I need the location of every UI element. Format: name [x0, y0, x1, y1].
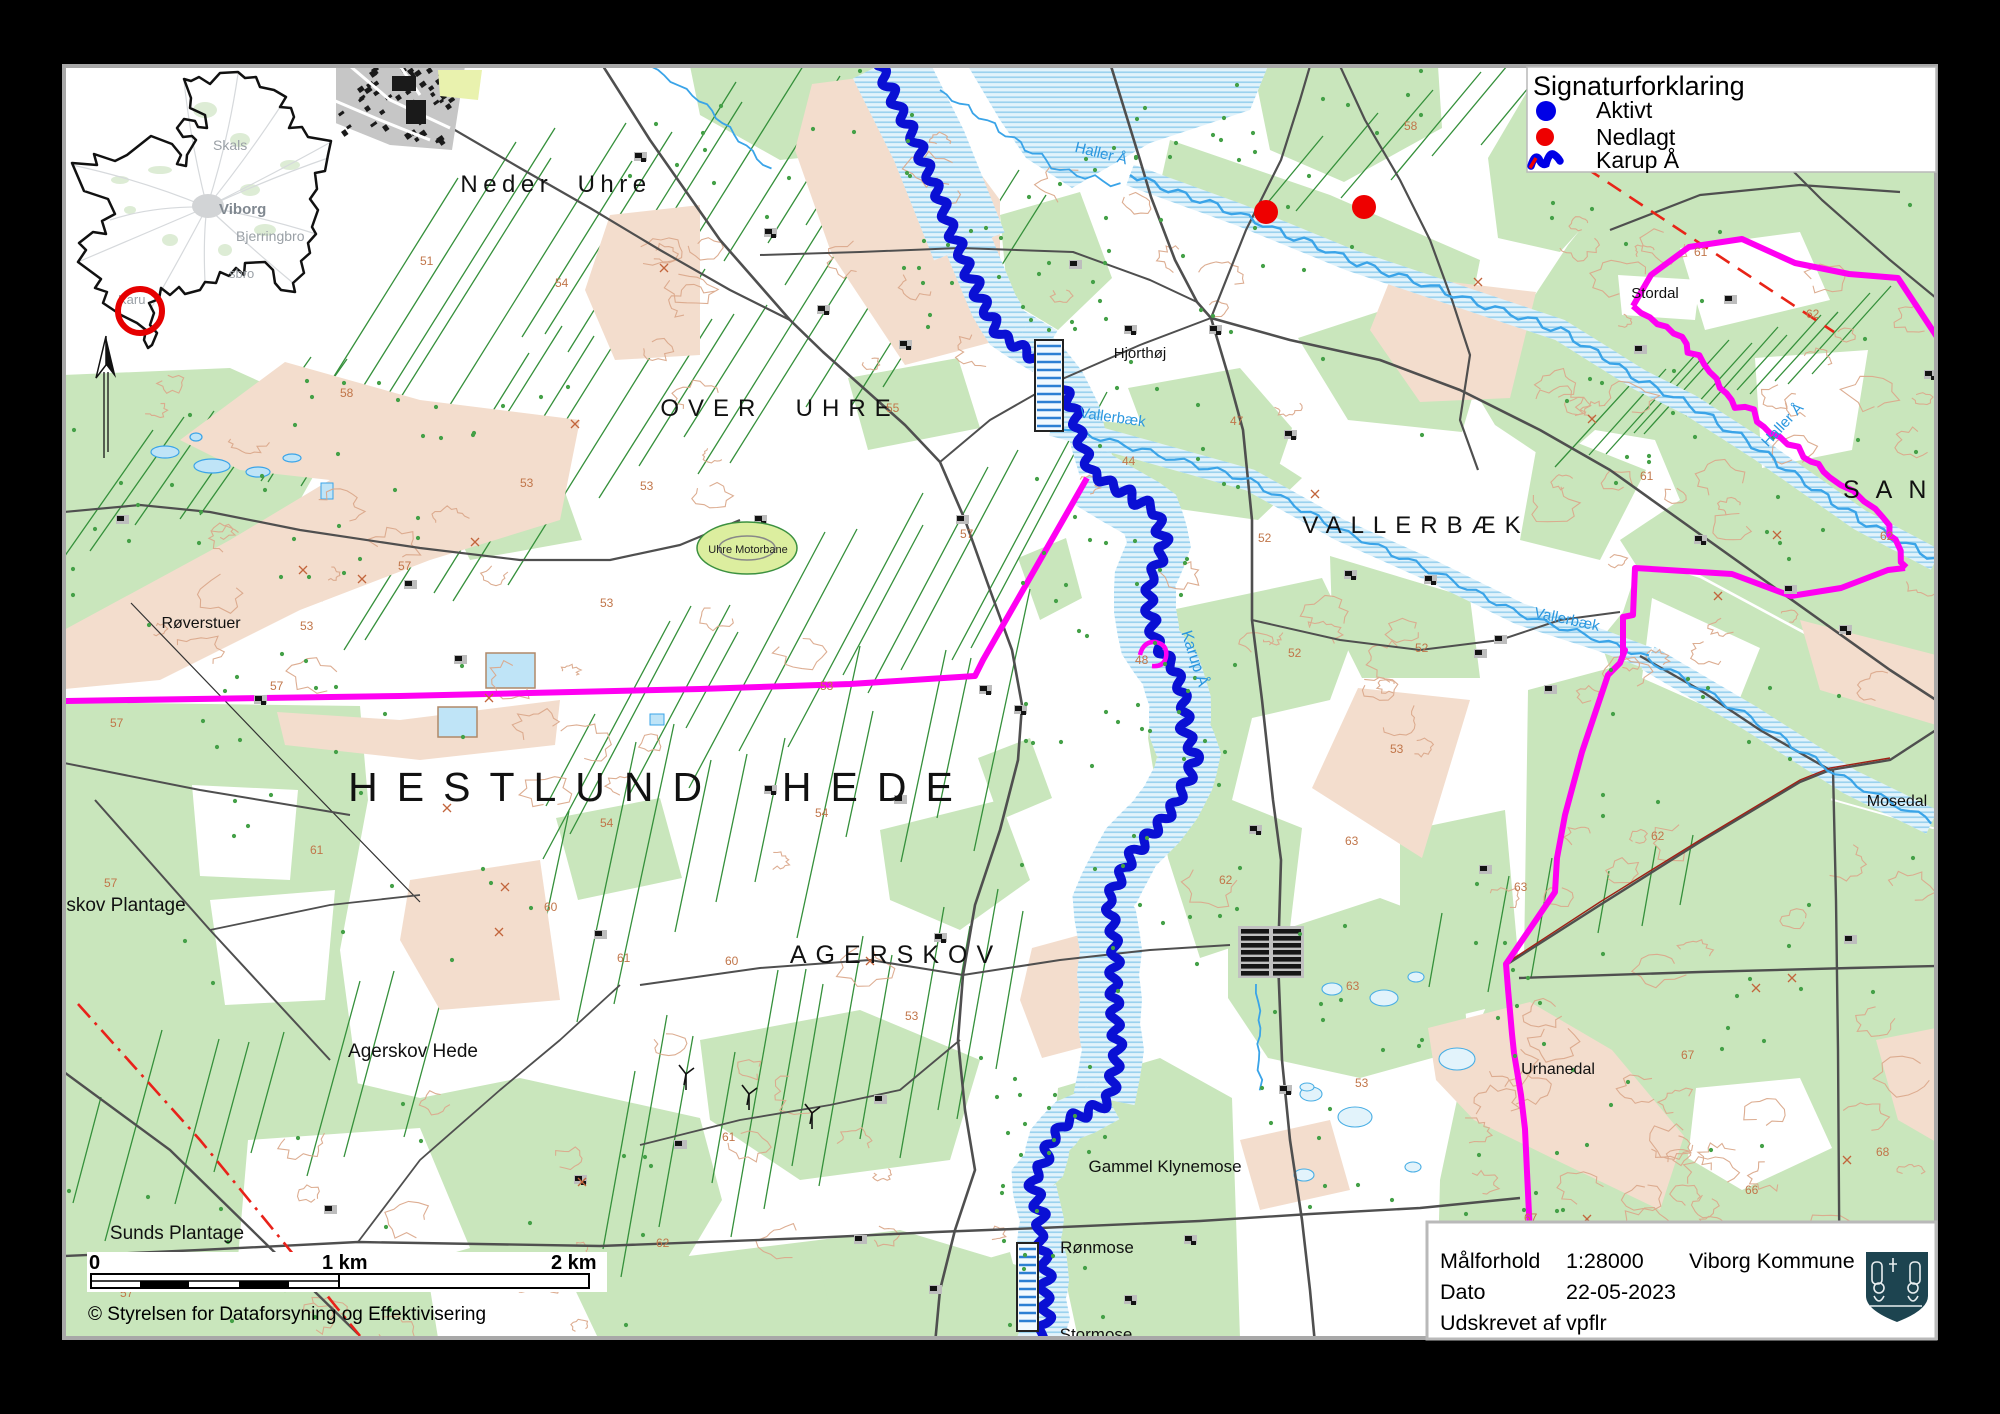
svg-text:rskov Plantage: rskov Plantage [60, 895, 186, 916]
svg-text:sbro: sbro [229, 266, 254, 281]
svg-text:61: 61 [310, 843, 324, 857]
svg-text:57: 57 [110, 716, 124, 730]
svg-text:Udskrevet af: Udskrevet af [1440, 1311, 1561, 1335]
svg-text:Dato: Dato [1440, 1280, 1485, 1304]
svg-text:62: 62 [1806, 307, 1820, 321]
svg-text:Urhanedal: Urhanedal [1521, 1061, 1595, 1078]
svg-text:Mosedal: Mosedal [1867, 793, 1927, 810]
svg-text:67: 67 [1681, 1048, 1695, 1062]
svg-text:Målforhold: Målforhold [1440, 1249, 1540, 1273]
svg-text:53: 53 [1355, 1076, 1369, 1090]
svg-text:Agerskov Hede: Agerskov Hede [348, 1041, 478, 1062]
svg-text:VALLERBÆK: VALLERBÆK [1302, 512, 1529, 539]
svg-text:AGERSKOV: AGERSKOV [790, 941, 1002, 969]
svg-text:Hjorthøj: Hjorthøj [1114, 345, 1167, 362]
svg-text:54: 54 [815, 806, 829, 820]
svg-text:OVER UHRE: OVER UHRE [660, 395, 899, 422]
svg-text:52: 52 [1415, 641, 1429, 655]
svg-text:62: 62 [1219, 873, 1233, 887]
svg-text:0: 0 [89, 1252, 100, 1274]
svg-text:58: 58 [1404, 119, 1418, 133]
svg-text:60: 60 [725, 954, 739, 968]
svg-text:52: 52 [1258, 531, 1272, 545]
svg-text:Røverstuer: Røverstuer [161, 615, 241, 632]
svg-text:Rønmose: Rønmose [1060, 1238, 1134, 1257]
svg-text:© Styrelsen for Dataforsyning: © Styrelsen for Dataforsyning og Effekti… [88, 1304, 486, 1325]
svg-text:53: 53 [600, 596, 614, 610]
svg-text:57: 57 [104, 876, 118, 890]
svg-text:Gammel Klynemose: Gammel Klynemose [1088, 1157, 1241, 1176]
svg-text:62: 62 [1880, 529, 1894, 543]
svg-text:58: 58 [340, 386, 354, 400]
svg-text:Karup Å: Karup Å [1596, 146, 1680, 173]
svg-text:44: 44 [1122, 454, 1136, 468]
svg-text:53: 53 [820, 679, 834, 693]
svg-text:53: 53 [300, 619, 314, 633]
svg-text:HESTLUND HEDE: HESTLUND HEDE [348, 764, 972, 810]
svg-text:1:28000: 1:28000 [1566, 1249, 1644, 1273]
svg-text:61: 61 [722, 1130, 736, 1144]
svg-text:63: 63 [1514, 880, 1528, 894]
svg-text:60: 60 [544, 900, 558, 914]
svg-text:53: 53 [1390, 742, 1404, 756]
svg-text:53: 53 [905, 1009, 919, 1023]
svg-text:Bjerringbro: Bjerringbro [236, 228, 305, 244]
svg-text:66: 66 [1745, 1183, 1759, 1197]
svg-text:Neder Uhre: Neder Uhre [460, 171, 651, 198]
svg-text:63: 63 [1345, 834, 1359, 848]
svg-text:48: 48 [1135, 653, 1149, 667]
svg-text:Sunds Plantage: Sunds Plantage [110, 1223, 244, 1244]
svg-text:52: 52 [1288, 646, 1302, 660]
svg-text:Skals: Skals [213, 137, 247, 153]
svg-text:47: 47 [1230, 414, 1244, 428]
svg-text:61: 61 [617, 951, 631, 965]
svg-text:vpflr: vpflr [1566, 1311, 1607, 1335]
svg-text:62: 62 [656, 1236, 670, 1250]
svg-text:61: 61 [1694, 245, 1708, 259]
svg-text:Aktivt: Aktivt [1596, 97, 1653, 123]
svg-text:61: 61 [1640, 469, 1654, 483]
svg-text:54: 54 [600, 816, 614, 830]
svg-text:63: 63 [1346, 979, 1360, 993]
svg-text:2 km: 2 km [551, 1252, 597, 1274]
svg-text:57: 57 [270, 679, 284, 693]
svg-text:55: 55 [886, 401, 900, 415]
svg-text:57: 57 [398, 559, 412, 573]
svg-text:62: 62 [1651, 829, 1665, 843]
svg-text:Uhre Motorbane: Uhre Motorbane [708, 544, 788, 556]
svg-text:53: 53 [640, 479, 654, 493]
svg-text:57: 57 [960, 527, 974, 541]
svg-text:Viborg: Viborg [219, 201, 266, 218]
svg-text:68: 68 [1876, 1145, 1890, 1159]
svg-text:1 km: 1 km [322, 1252, 368, 1274]
svg-text:54: 54 [555, 276, 569, 290]
svg-text:Stordal: Stordal [1631, 285, 1679, 302]
svg-text:53: 53 [520, 476, 534, 490]
svg-text:22-05-2023: 22-05-2023 [1566, 1280, 1676, 1304]
svg-text:51: 51 [420, 254, 434, 268]
svg-text:Viborg Kommune: Viborg Kommune [1689, 1249, 1855, 1273]
